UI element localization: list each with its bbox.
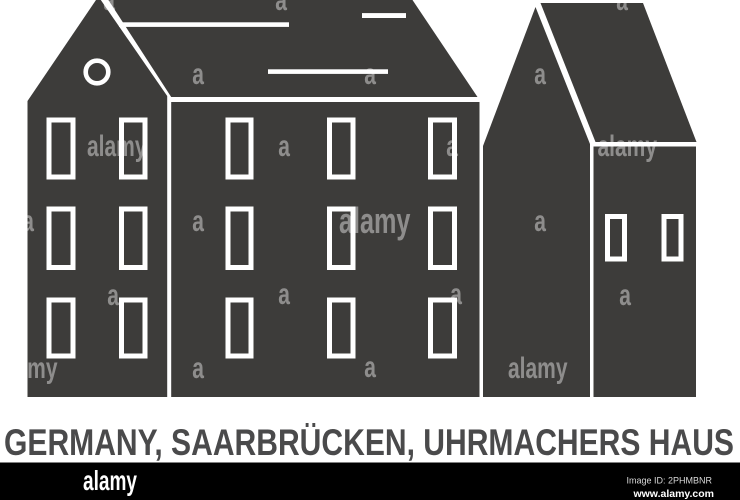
- svg-text:a: a: [107, 280, 119, 312]
- svg-text:alamy: alamy: [83, 465, 138, 497]
- svg-text:alamy: alamy: [0, 353, 58, 385]
- svg-text:alamy: alamy: [598, 131, 658, 163]
- svg-text:a: a: [534, 59, 546, 91]
- svg-text:www.alamy.com: www.alamy.com: [632, 488, 714, 500]
- svg-text:a: a: [192, 206, 204, 238]
- svg-text:a: a: [192, 353, 204, 385]
- svg-text:GERMANY, SAARBRÜCKEN, UHRMACHE: GERMANY, SAARBRÜCKEN, UHRMACHERS HAUS: [4, 422, 734, 463]
- svg-text:a: a: [616, 0, 628, 17]
- svg-text:a: a: [278, 279, 290, 311]
- svg-text:a: a: [22, 206, 34, 238]
- svg-text:a: a: [446, 131, 458, 163]
- svg-text:alamy: alamy: [87, 131, 147, 163]
- svg-text:alamy: alamy: [339, 201, 411, 242]
- svg-text:a: a: [364, 59, 376, 91]
- svg-text:a: a: [619, 280, 631, 312]
- svg-text:a: a: [192, 59, 204, 91]
- svg-text:Image ID: 2PHMBNR: Image ID: 2PHMBNR: [626, 476, 712, 486]
- svg-text:a: a: [364, 352, 376, 384]
- svg-text:a: a: [450, 279, 462, 311]
- svg-text:alamy: alamy: [508, 353, 568, 385]
- svg-text:a: a: [275, 0, 287, 17]
- svg-text:a: a: [103, 0, 115, 17]
- svg-text:a: a: [278, 131, 290, 163]
- svg-text:a: a: [534, 206, 546, 238]
